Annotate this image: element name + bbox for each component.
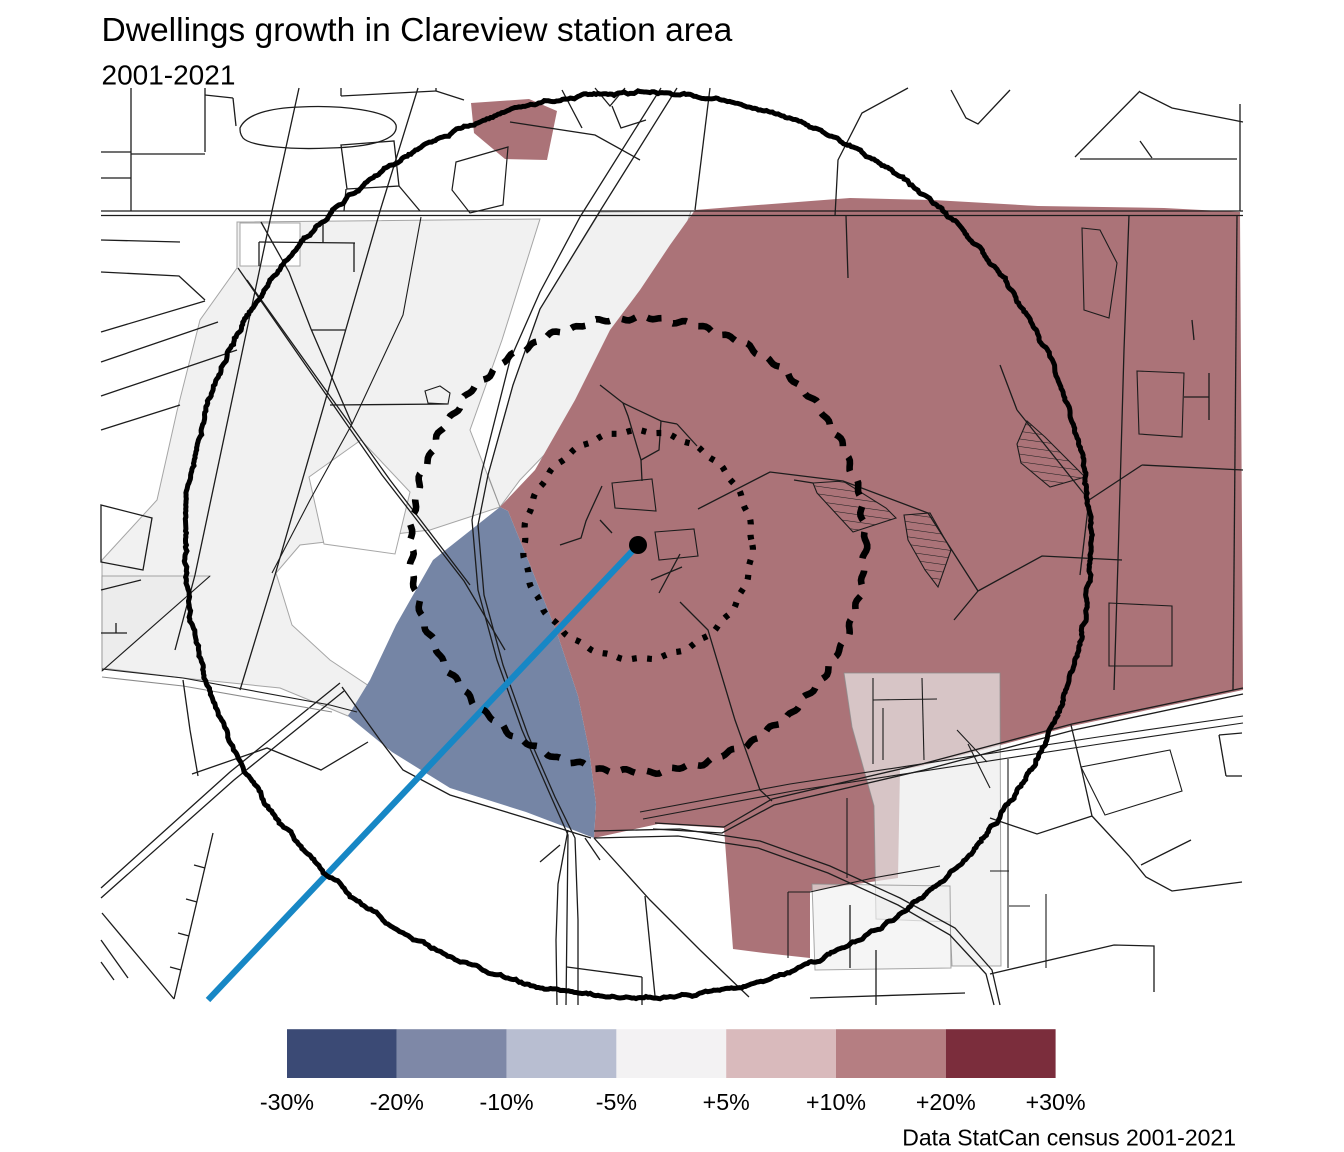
svg-text:Dwellings growth in Clareview: Dwellings growth in Clareview station ar…	[102, 12, 733, 49]
svg-text:-5%: -5%	[596, 1089, 637, 1115]
svg-text:-20%: -20%	[370, 1089, 424, 1115]
svg-text:2001-2021: 2001-2021	[102, 60, 236, 91]
svg-text:Data StatCan census 2001-2021: Data StatCan census 2001-2021	[902, 1125, 1236, 1151]
svg-text:-10%: -10%	[480, 1089, 534, 1115]
svg-text:+10%: +10%	[806, 1089, 866, 1115]
svg-text:-30%: -30%	[260, 1089, 314, 1115]
svg-text:+20%: +20%	[916, 1089, 976, 1115]
svg-text:+5%: +5%	[703, 1089, 750, 1115]
svg-text:+30%: +30%	[1026, 1089, 1086, 1115]
